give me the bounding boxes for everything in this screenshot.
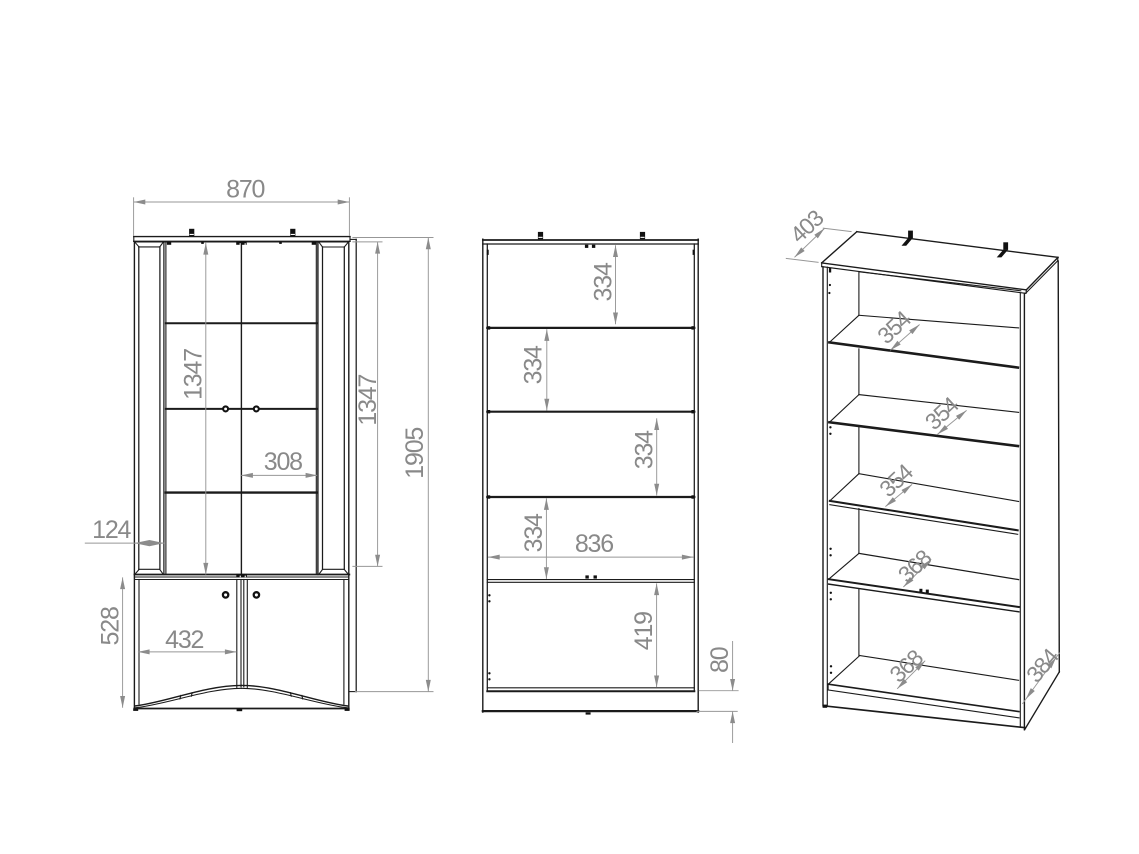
svg-text:870: 870 — [226, 176, 264, 204]
svg-text:80: 80 — [706, 647, 734, 673]
svg-text:334: 334 — [519, 345, 547, 384]
svg-text:334: 334 — [589, 262, 617, 301]
svg-text:124: 124 — [92, 516, 131, 544]
svg-text:334: 334 — [520, 513, 548, 552]
svg-text:432: 432 — [165, 626, 203, 654]
svg-text:1347: 1347 — [180, 349, 208, 400]
svg-text:836: 836 — [575, 530, 613, 558]
svg-text:419: 419 — [630, 612, 658, 650]
svg-text:1905: 1905 — [401, 428, 429, 479]
svg-text:334: 334 — [631, 430, 659, 469]
svg-text:308: 308 — [264, 448, 302, 476]
svg-text:1347: 1347 — [354, 375, 382, 426]
svg-text:528: 528 — [96, 607, 124, 645]
